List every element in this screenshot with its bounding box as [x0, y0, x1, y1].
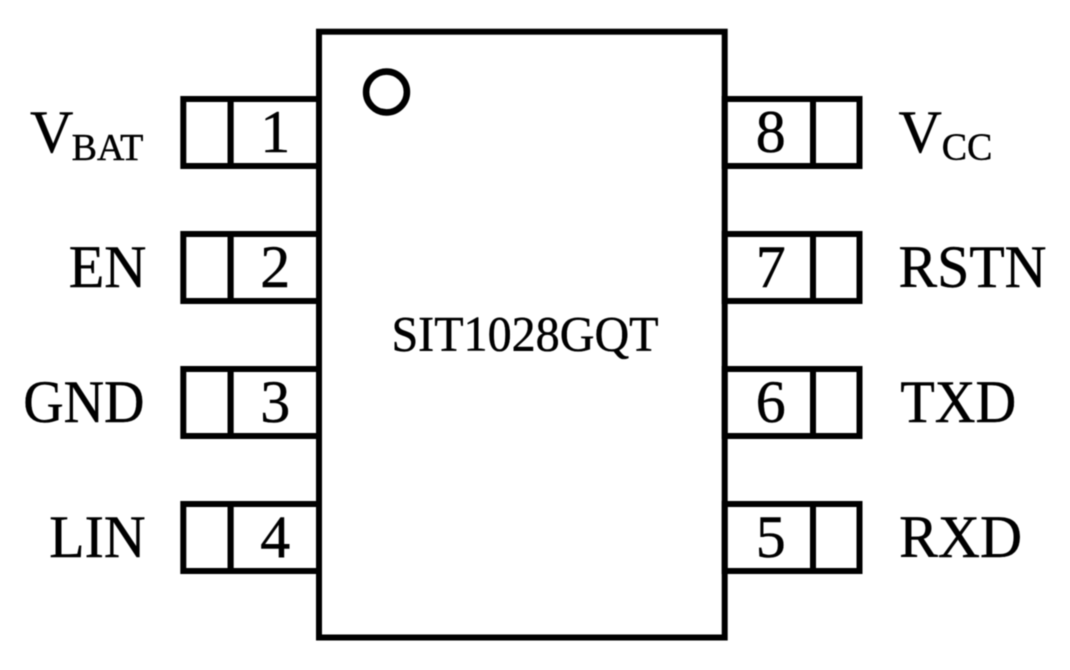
svg-text:V: V: [899, 99, 942, 165]
svg-text:CC: CC: [942, 127, 993, 169]
svg-text:SIT1028GQT: SIT1028GQT: [391, 306, 658, 362]
svg-text:1: 1: [260, 99, 290, 165]
svg-text:GND: GND: [23, 369, 144, 435]
svg-text:EN: EN: [69, 234, 147, 300]
svg-text:8: 8: [756, 99, 786, 165]
svg-text:RSTN: RSTN: [899, 234, 1047, 300]
svg-text:TXD: TXD: [900, 369, 1016, 435]
svg-text:BAT: BAT: [72, 127, 144, 169]
svg-text:7: 7: [756, 234, 786, 300]
svg-text:3: 3: [260, 369, 290, 435]
svg-text:RXD: RXD: [899, 504, 1022, 570]
svg-text:V: V: [30, 99, 73, 165]
svg-text:5: 5: [756, 504, 786, 570]
svg-text:LIN: LIN: [49, 504, 145, 570]
svg-text:4: 4: [260, 504, 290, 570]
svg-text:2: 2: [260, 234, 290, 300]
svg-text:6: 6: [756, 369, 786, 435]
